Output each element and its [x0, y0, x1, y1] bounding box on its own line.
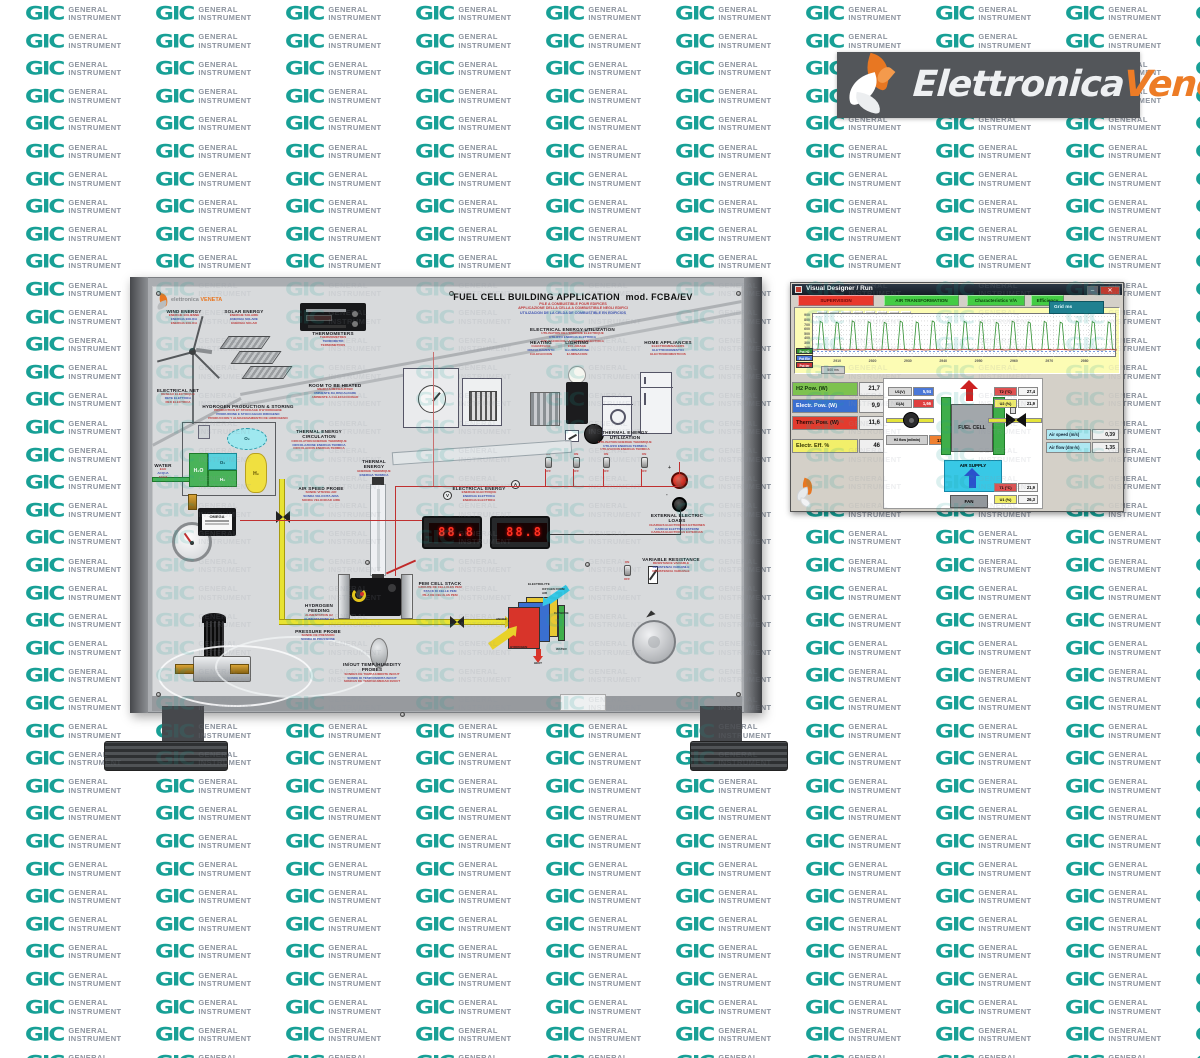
watermark-tile: GICGENERALINSTRUMENT: [25, 887, 122, 907]
legend-pot-h2: Pot H2: [796, 348, 813, 354]
watermark-tile: GICGENERALINSTRUMENT: [155, 114, 252, 134]
panel-label-home-appliances: HOME APPLIANCESELECTROMENAGERSELETTRODOM…: [636, 340, 700, 357]
minimize-button[interactable]: –: [1087, 286, 1098, 295]
reading-value-electr-pow-w-: 9,9: [859, 399, 884, 413]
panel-label-air-speed-probe: AIR SPEED PROBESONDE VITESSE AIRSONDA VE…: [292, 486, 350, 503]
watermark-tile: GICGENERALINSTRUMENT: [675, 114, 772, 134]
watermark-tile: GICGENERALINSTRUMENT: [25, 998, 122, 1018]
exhaust-arrow: [966, 387, 973, 401]
watermark-tile: GICGENERALINSTRUMENT: [675, 4, 772, 24]
watermark-tile: GICGENERALINSTRUMENT: [1195, 611, 1200, 631]
watermark-tile: GICGENERALINSTRUMENT: [805, 1053, 902, 1058]
voltmeter-display: 88.8: [429, 523, 479, 542]
air-valve[interactable]: [1016, 413, 1026, 427]
watermark-tile: GICGENERALINSTRUMENT: [25, 363, 122, 383]
watermark-tile: GICGENERALINSTRUMENT: [545, 225, 642, 245]
watermark-tile: GICGENERALINSTRUMENT: [1065, 1053, 1162, 1058]
y-tick-label: 800: [797, 318, 810, 322]
watermark-tile: GICGENERALINSTRUMENT: [805, 749, 902, 769]
panel-label-h2-production: HYDROGEN PRODUCTION & STORINGPRODUCTION …: [200, 404, 296, 421]
x-tick-label: 2940: [939, 359, 947, 363]
t2-value: 27,4: [1018, 387, 1038, 396]
watermark-tile: GICGENERALINSTRUMENT: [25, 4, 122, 24]
screw: [736, 291, 741, 296]
panel-label-pressure-probe: PRESSURE PROBESONDE DE PRESSIONSONDA DI …: [294, 629, 342, 642]
variable-resistance-switch: ONOFF: [622, 560, 632, 581]
y-tick-label: 300: [797, 341, 810, 345]
watermark-tile: GICGENERALINSTRUMENT: [1065, 170, 1162, 190]
watermark-tile: GICGENERALINSTRUMENT: [285, 4, 382, 24]
watermark-tile: GICGENERALINSTRUMENT: [1195, 501, 1200, 521]
watermark-tile: GICGENERALINSTRUMENT: [25, 722, 122, 742]
watermark-tile: GICGENERALINSTRUMENT: [155, 142, 252, 162]
watermark-tile: GICGENERALINSTRUMENT: [25, 170, 122, 190]
watermark-tile: GICGENERALINSTRUMENT: [155, 4, 252, 24]
watermark-tile: GICGENERALINSTRUMENT: [1195, 4, 1200, 24]
watermark-tile: GICGENERALINSTRUMENT: [25, 59, 122, 79]
panel-label-thermal-circ: THERMAL ENERGY CIRCULATIONCIRCULATION EN…: [288, 429, 350, 451]
panel-label-solar-energy: SOLAR ENERGYENERGIE SOLAIREENERGIA SOLAR…: [219, 309, 269, 326]
red-wire: [545, 469, 546, 487]
panel-right-leg: [700, 706, 742, 744]
watermark-tile: GICGENERALINSTRUMENT: [675, 225, 772, 245]
fuel-cell-block: FUEL CELL: [951, 404, 993, 452]
panel-label-variable-resistance: VARIABLE RESISTANCERESISTANCE VARIABLERE…: [640, 557, 702, 574]
time-base-button[interactable]: 500 ms: [821, 366, 845, 374]
watermark-tile: GICGENERALINSTRUMENT: [1065, 197, 1162, 217]
watermark-tile: GICGENERALINSTRUMENT: [1195, 446, 1200, 466]
watermark-tile: GICGENERALINSTRUMENT: [1195, 308, 1200, 328]
panel-frame-right-edge: [744, 277, 762, 713]
h2flow-label: H2 flow (ml/min): [886, 435, 928, 445]
watermark-tile: GICGENERALINSTRUMENT: [285, 59, 382, 79]
watermark-tile: GICGENERALINSTRUMENT: [1195, 970, 1200, 990]
watermark-tile: GICGENERALINSTRUMENT: [155, 832, 252, 852]
software-brand-icon: [794, 479, 818, 509]
panel-label-wind-energy: WIND ENERGYENERGIE EOLIENNEENERGIA EOLIC…: [160, 309, 208, 326]
watermark-tile: GICGENERALINSTRUMENT: [415, 832, 512, 852]
watermark-tile: GICGENERALINSTRUMENT: [545, 197, 642, 217]
panel-label-lighting: LIGHTINGECLAIRAGEILLUMINAZIONEILUMINACIO…: [556, 340, 598, 357]
watermark-tile: GICGENERALINSTRUMENT: [285, 860, 382, 880]
panel-label-electrical-energy: ELECTRICAL ENERGYENERGIE ELECTRIQUEENERG…: [443, 486, 515, 503]
y-tick-label: 400: [797, 336, 810, 340]
watermark-tile: GICGENERALINSTRUMENT: [935, 694, 1032, 714]
watermark-tile: GICGENERALINSTRUMENT: [935, 32, 1032, 52]
watermark-tile: GICGENERALINSTRUMENT: [25, 308, 122, 328]
watermark-tile: GICGENERALINSTRUMENT: [1195, 225, 1200, 245]
watermark-tile: GICGENERALINSTRUMENT: [1195, 32, 1200, 52]
watermark-tile: GICGENERALINSTRUMENT: [805, 694, 902, 714]
u1v-value: 5,94: [913, 387, 934, 396]
watermark-tile: GICGENERALINSTRUMENT: [285, 804, 382, 824]
reading-value-h2-pow-w-: 21,7: [859, 382, 884, 396]
watermark-tile: GICGENERALINSTRUMENT: [285, 32, 382, 52]
watermark-tile: GICGENERALINSTRUMENT: [675, 832, 772, 852]
red-wire: [679, 462, 680, 474]
watermark-tile: GICGENERALINSTRUMENT: [155, 87, 252, 107]
watermark-tile: GICGENERALINSTRUMENT: [545, 170, 642, 190]
jack-minus-sign: -: [666, 492, 668, 498]
x-tick-label: 2960: [1010, 359, 1018, 363]
tab-supervision[interactable]: SUPERVISION: [798, 295, 874, 306]
watermark-tile: GICGENERALINSTRUMENT: [1195, 1025, 1200, 1045]
watermark-tile: GICGENERALINSTRUMENT: [805, 915, 902, 935]
watermark-tile: GICGENERALINSTRUMENT: [285, 749, 382, 769]
h2-cylinder: H₂: [245, 453, 267, 493]
watermark-tile: GICGENERALINSTRUMENT: [1065, 556, 1162, 576]
watermark-tile: GICGENERALINSTRUMENT: [935, 942, 1032, 962]
watermark-tile: GICGENERALINSTRUMENT: [805, 556, 902, 576]
watermark-tile: GICGENERALINSTRUMENT: [805, 252, 902, 272]
watermark-tile: GICGENERALINSTRUMENT: [805, 197, 902, 217]
watermark-tile: GICGENERALINSTRUMENT: [545, 722, 642, 742]
watermark-tile: GICGENERALINSTRUMENT: [545, 887, 642, 907]
watermark-tile: GICGENERALINSTRUMENT: [935, 998, 1032, 1018]
u2-value: 21,9: [1018, 399, 1038, 408]
watermark-tile: GICGENERALINSTRUMENT: [1195, 528, 1200, 548]
flow-tube-fitting: [372, 477, 384, 485]
watermark-tile: GICGENERALINSTRUMENT: [415, 142, 512, 162]
red-wire: [240, 520, 422, 521]
panel-label-water: WATEREAUACQUAAGUA: [150, 463, 176, 480]
x-tick-label: 2980: [1081, 359, 1089, 363]
watermark-tile: GICGENERALINSTRUMENT: [805, 225, 902, 245]
h2-valve[interactable]: [903, 412, 919, 428]
watermark-tile: GICGENERALINSTRUMENT: [415, 942, 512, 962]
software-window: Visual Designer / Run – ✕ SUPERVISIONAIR…: [790, 282, 1124, 512]
watermark-tile: GICGENERALINSTRUMENT: [805, 584, 902, 604]
watermark-tile: GICGENERALINSTRUMENT: [25, 335, 122, 355]
t2-label: T2 (°C): [994, 387, 1017, 396]
watermark-tile: GICGENERALINSTRUMENT: [675, 777, 772, 797]
u1v-label: U1(V): [888, 387, 912, 396]
voltmeter: 88.8: [422, 516, 482, 549]
watermark-tile: GICGENERALINSTRUMENT: [1195, 1053, 1200, 1058]
watermark-tile: GICGENERALINSTRUMENT: [1065, 694, 1162, 714]
watermark-tile: GICGENERALINSTRUMENT: [25, 1053, 122, 1058]
watermark-tile: GICGENERALINSTRUMENT: [1195, 887, 1200, 907]
watermark-tile: GICGENERALINSTRUMENT: [285, 970, 382, 990]
watermark-tile: GICGENERALINSTRUMENT: [155, 970, 252, 990]
watermark-tile: GICGENERALINSTRUMENT: [805, 970, 902, 990]
watermark-tile: GICGENERALINSTRUMENT: [285, 832, 382, 852]
watermark-tile: GICGENERALINSTRUMENT: [1195, 363, 1200, 383]
watermark-tile: GICGENERALINSTRUMENT: [285, 1053, 382, 1058]
red-wire: [573, 469, 574, 487]
watermark-tile: GICGENERALINSTRUMENT: [1065, 860, 1162, 880]
watermark-tile: GICGENERALINSTRUMENT: [415, 1053, 512, 1058]
watermark-tile: GICGENERALINSTRUMENT: [545, 1025, 642, 1045]
watermark-tile: GICGENERALINSTRUMENT: [1065, 722, 1162, 742]
reading-value-air-flow-dm-s-: 1,35: [1092, 442, 1119, 453]
watermark-tile: GICGENERALINSTRUMENT: [805, 528, 902, 548]
watermark-tile: GICGENERALINSTRUMENT: [675, 804, 772, 824]
watermark-tile: GICGENERALINSTRUMENT: [805, 4, 902, 24]
grid-info-box: Grid ms: [1049, 301, 1104, 314]
panel-frame-left-edge: [130, 277, 148, 713]
watermark-tile: GICGENERALINSTRUMENT: [935, 860, 1032, 880]
page: GICGENERALINSTRUMENTGICGENERALINSTRUMENT…: [0, 0, 1200, 1058]
watermark-tile: GICGENERALINSTRUMENT: [1195, 804, 1200, 824]
watermark-tile: GICGENERALINSTRUMENT: [285, 915, 382, 935]
y-tick-label: 900: [797, 313, 810, 317]
watermark-tile: GICGENERALINSTRUMENT: [1195, 584, 1200, 604]
watermark-tile: GICGENERALINSTRUMENT: [805, 887, 902, 907]
watermark-tile: GICGENERALINSTRUMENT: [25, 528, 122, 548]
watermark-tile: GICGENERALINSTRUMENT: [415, 252, 512, 272]
watermark-tile: GICGENERALINSTRUMENT: [545, 749, 642, 769]
watermark-tile: GICGENERALINSTRUMENT: [935, 197, 1032, 217]
watermark-tile: GICGENERALINSTRUMENT: [935, 528, 1032, 548]
watermark-tile: GICGENERALINSTRUMENT: [1195, 170, 1200, 190]
watermark-tile: GICGENERALINSTRUMENT: [415, 777, 512, 797]
watermark-tile: GICGENERALINSTRUMENT: [155, 942, 252, 962]
watermark-tile: GICGENERALINSTRUMENT: [25, 390, 122, 410]
watermark-tile: GICGENERALINSTRUMENT: [1065, 942, 1162, 962]
mini-logo-text: elettronica VENETA: [171, 297, 222, 303]
watermark-tile: GICGENERALINSTRUMENT: [415, 170, 512, 190]
watermark-tile: GICGENERALINSTRUMENT: [1065, 804, 1162, 824]
watermark-tile: GICGENERALINSTRUMENT: [1065, 970, 1162, 990]
air-valve[interactable]: [1006, 413, 1016, 427]
watermark-tile: GICGENERALINSTRUMENT: [805, 804, 902, 824]
watermark-tile: GICGENERALINSTRUMENT: [805, 666, 902, 686]
watermark-tile: GICGENERALINSTRUMENT: [415, 915, 512, 935]
watermark-tile: GICGENERALINSTRUMENT: [1195, 915, 1200, 935]
watermark-tile: GICGENERALINSTRUMENT: [545, 59, 642, 79]
watermark-tile: GICGENERALINSTRUMENT: [545, 114, 642, 134]
reading-label-air-speed-m-s-: Air speed (m/s): [1046, 429, 1091, 440]
watermark-tile: GICGENERALINSTRUMENT: [1195, 942, 1200, 962]
watermark-tile: GICGENERALINSTRUMENT: [415, 87, 512, 107]
watermark-tile: GICGENERALINSTRUMENT: [25, 32, 122, 52]
watermark-tile: GICGENERALINSTRUMENT: [805, 942, 902, 962]
panel-label-thermometers: THERMOMETERSTHERMOMETRESTERMOMETRITERMOM…: [302, 331, 364, 348]
watermark-tile: GICGENERALINSTRUMENT: [155, 804, 252, 824]
watermark-tile: GICGENERALINSTRUMENT: [25, 280, 122, 300]
watermark-tile: GICGENERALINSTRUMENT: [545, 998, 642, 1018]
watermark-tile: GICGENERALINSTRUMENT: [1195, 280, 1200, 300]
panel-label-h2-feeding: HYDROGEN FEEDINGALIMENTATION H2ALIMENTAZ…: [296, 603, 342, 621]
watermark-tile: GICGENERALINSTRUMENT: [25, 142, 122, 162]
watermark-tile: GICGENERALINSTRUMENT: [935, 4, 1032, 24]
watermark-tile: GICGENERALINSTRUMENT: [1195, 473, 1200, 493]
watermark-tile: GICGENERALINSTRUMENT: [1065, 1025, 1162, 1045]
screw: [365, 560, 370, 565]
watermark-tile: GICGENERALINSTRUMENT: [1195, 749, 1200, 769]
screw: [400, 712, 405, 717]
t1-value: 21,9: [1018, 483, 1038, 492]
watermark-tile: GICGENERALINSTRUMENT: [155, 998, 252, 1018]
watermark-tile: GICGENERALINSTRUMENT: [1195, 197, 1200, 217]
x-tick-label: 2950: [975, 359, 983, 363]
watermark-tile: GICGENERALINSTRUMENT: [415, 32, 512, 52]
watermark-tile: GICGENERALINSTRUMENT: [25, 804, 122, 824]
watermark-tile: GICGENERALINSTRUMENT: [545, 804, 642, 824]
watermark-tile: GICGENERALINSTRUMENT: [155, 197, 252, 217]
process-diagram: U1(V) 5,94 I1(A) 1,66 H2 flow (ml/min) 1…: [883, 378, 1043, 509]
tab-characteristics-v-a[interactable]: Characteristics V/A: [967, 295, 1025, 306]
watermark-tile: GICGENERALINSTRUMENT: [935, 915, 1032, 935]
watermark-tile: GICGENERALINSTRUMENT: [25, 418, 122, 438]
watermark-tile: GICGENERALINSTRUMENT: [545, 970, 642, 990]
watermark-tile: GICGENERALINSTRUMENT: [1195, 860, 1200, 880]
y-tick-label: 600: [797, 327, 810, 331]
watermark-tile: GICGENERALINSTRUMENT: [285, 722, 382, 742]
reading-value-therm-pow-w-: 11,6: [859, 416, 884, 430]
panel-left-foot: [104, 741, 228, 771]
watermark-tile: GICGENERALINSTRUMENT: [545, 252, 642, 272]
watermark-tile: GICGENERALINSTRUMENT: [285, 998, 382, 1018]
u1p-value: 26,3: [1018, 495, 1038, 504]
watermark-tile: GICGENERALINSTRUMENT: [1065, 749, 1162, 769]
watermark-tile: GICGENERALINSTRUMENT: [25, 87, 122, 107]
watermark-tile: GICGENERALINSTRUMENT: [285, 942, 382, 962]
plot-area: [812, 313, 1116, 357]
watermark-tile: GICGENERALINSTRUMENT: [415, 749, 512, 769]
panel-label-room-heated: ROOM TO BE HEATEDMILIEU A RECHAUFFERAMBI…: [303, 383, 367, 400]
watermark-tile: GICGENERALINSTRUMENT: [675, 860, 772, 880]
watermark-tile: GICGENERALINSTRUMENT: [415, 1025, 512, 1045]
chart-plot: [813, 314, 1117, 358]
t1-label: T1 (°C): [994, 483, 1017, 492]
i1a-value: 1,66: [913, 399, 934, 408]
watermark-tile: GICGENERALINSTRUMENT: [805, 722, 902, 742]
watermark-tile: GICGENERALINSTRUMENT: [1195, 639, 1200, 659]
red-wire: [433, 352, 434, 486]
watermark-tile: GICGENERALINSTRUMENT: [1195, 252, 1200, 272]
watermark-tile: GICGENERALINSTRUMENT: [935, 225, 1032, 245]
watermark-tile: GICGENERALINSTRUMENT: [675, 942, 772, 962]
watermark-tile: GICGENERALINSTRUMENT: [935, 666, 1032, 686]
x-tick-label: 2970: [1045, 359, 1053, 363]
watermark-tile: GICGENERALINSTRUMENT: [25, 694, 122, 714]
x-tick-label: 2910: [833, 359, 841, 363]
watermark-tile: GICGENERALINSTRUMENT: [1065, 584, 1162, 604]
ammeter: 88.8: [490, 516, 550, 549]
watermark-tile: GICGENERALINSTRUMENT: [1195, 390, 1200, 410]
watermark-tile: GICGENERALINSTRUMENT: [25, 832, 122, 852]
radio-stereo: [300, 303, 366, 331]
legend-pot-ele: Pot Ele: [796, 355, 813, 361]
reading-label-therm-pow-w-: Therm. Pow. (W): [792, 416, 858, 430]
red-wire: [395, 486, 396, 576]
red-wire: [603, 469, 604, 487]
watermark-tile: GICGENERALINSTRUMENT: [675, 970, 772, 990]
panel-left-leg: [162, 706, 204, 744]
watermark-tile: GICGENERALINSTRUMENT: [285, 887, 382, 907]
h2-pipe-vertical: [279, 479, 285, 621]
watermark-tile: GICGENERALINSTRUMENT: [1195, 777, 1200, 797]
reading-label-air-flow-dm-s-: Air flow (dm³/s): [1046, 442, 1091, 453]
watermark-tile: GICGENERALINSTRUMENT: [1195, 832, 1200, 852]
watermark-tile: GICGENERALINSTRUMENT: [545, 4, 642, 24]
watermark-tile: GICGENERALINSTRUMENT: [1065, 252, 1162, 272]
watermark-tile: GICGENERALINSTRUMENT: [935, 252, 1032, 272]
watermark-tile: GICGENERALINSTRUMENT: [675, 87, 772, 107]
watermark-tile: GICGENERALINSTRUMENT: [935, 584, 1032, 604]
watermark-tile: GICGENERALINSTRUMENT: [1065, 32, 1162, 52]
watermark-tile: GICGENERALINSTRUMENT: [415, 197, 512, 217]
watermark-tile: GICGENERALINSTRUMENT: [1065, 225, 1162, 245]
watermark-tile: GICGENERALINSTRUMENT: [155, 915, 252, 935]
electrode-bar: [941, 397, 951, 455]
watermark-tile: GICGENERALINSTRUMENT: [1195, 998, 1200, 1018]
watermark-tile: GICGENERALINSTRUMENT: [415, 860, 512, 880]
watermark-tile: GICGENERALINSTRUMENT: [805, 1025, 902, 1045]
brand-logo-bar: ElettronicaVeneta: [837, 52, 1140, 118]
screw: [156, 291, 161, 296]
close-button[interactable]: ✕: [1100, 286, 1120, 295]
watermark-tile: GICGENERALINSTRUMENT: [1065, 666, 1162, 686]
watermark-tile: GICGENERALINSTRUMENT: [25, 970, 122, 990]
watermark-tile: GICGENERALINSTRUMENT: [1065, 887, 1162, 907]
watermark-tile: GICGENERALINSTRUMENT: [25, 584, 122, 604]
watermark-tile: GICGENERALINSTRUMENT: [25, 860, 122, 880]
window-titlebar[interactable]: Visual Designer / Run – ✕: [792, 284, 1122, 295]
watermark-tile: GICGENERALINSTRUMENT: [25, 225, 122, 245]
watermark-tile: GICGENERALINSTRUMENT: [545, 942, 642, 962]
watermark-tile: GICGENERALINSTRUMENT: [675, 32, 772, 52]
i1a-label: I1(A): [888, 399, 912, 408]
watermark-tile: GICGENERALINSTRUMENT: [805, 142, 902, 162]
watermark-tile: GICGENERALINSTRUMENT: [415, 970, 512, 990]
watermark-tile: GICGENERALINSTRUMENT: [415, 59, 512, 79]
refrigerator: [640, 372, 672, 434]
heater-fins: [530, 392, 560, 426]
ammeter-display: 88.8: [497, 523, 547, 542]
panel-title: FUEL CELL BUILDING APPLICATION mod. FCBA…: [448, 292, 698, 315]
tab-air-transformation[interactable]: AIR TRANSFORMATION: [884, 295, 959, 306]
watermark-tile: GICGENERALINSTRUMENT: [935, 749, 1032, 769]
variable-resistor-knob: [632, 620, 676, 664]
reading-label-h2-pow-w-: H2 Pow. (W): [792, 382, 858, 396]
watermark-tile: GICGENERALINSTRUMENT: [25, 501, 122, 521]
thermostat-box: [403, 368, 459, 428]
flow-meter: OMEGA: [198, 508, 236, 536]
watermark-tile: GICGENERALINSTRUMENT: [25, 777, 122, 797]
brand-name: ElettronicaVeneta: [911, 62, 1200, 108]
watermark-tile: GICGENERALINSTRUMENT: [935, 887, 1032, 907]
watermark-tile: GICGENERALINSTRUMENT: [155, 887, 252, 907]
screw: [736, 692, 741, 697]
watermark-tile: GICGENERALINSTRUMENT: [935, 170, 1032, 190]
watermark-tile: GICGENERALINSTRUMENT: [935, 556, 1032, 576]
watermark-tile: GICGENERALINSTRUMENT: [1065, 915, 1162, 935]
watermark-tile: GICGENERALINSTRUMENT: [415, 722, 512, 742]
watermark-tile: GICGENERALINSTRUMENT: [1065, 611, 1162, 631]
watermark-tile: GICGENERALINSTRUMENT: [675, 887, 772, 907]
watermark-tile: GICGENERALINSTRUMENT: [155, 59, 252, 79]
jack-plus-sign: +: [668, 465, 671, 471]
watermark-tile: GICGENERALINSTRUMENT: [1065, 142, 1162, 162]
y-tick-label: 500: [797, 332, 810, 336]
watermark-tile: GICGENERALINSTRUMENT: [415, 225, 512, 245]
panel-label-electrical-net: ELECTRICAL NETRESEAU ELECTRIQUERETE ELET…: [150, 388, 206, 405]
watermark-tile: GICGENERALINSTRUMENT: [415, 887, 512, 907]
watermark-tile: GICGENERALINSTRUMENT: [675, 998, 772, 1018]
watermark-tile: GICGENERALINSTRUMENT: [935, 611, 1032, 631]
watermark-tile: GICGENERALINSTRUMENT: [25, 1025, 122, 1045]
o2-box: O₂: [208, 453, 237, 470]
watermark-tile: GICGENERALINSTRUMENT: [545, 860, 642, 880]
watermark-tile: GICGENERALINSTRUMENT: [285, 197, 382, 217]
watermark-tile: GICGENERALINSTRUMENT: [415, 4, 512, 24]
watermark-tile: GICGENERALINSTRUMENT: [285, 170, 382, 190]
pipe-valve: [457, 616, 464, 628]
watermark-tile: GICGENERALINSTRUMENT: [1195, 694, 1200, 714]
